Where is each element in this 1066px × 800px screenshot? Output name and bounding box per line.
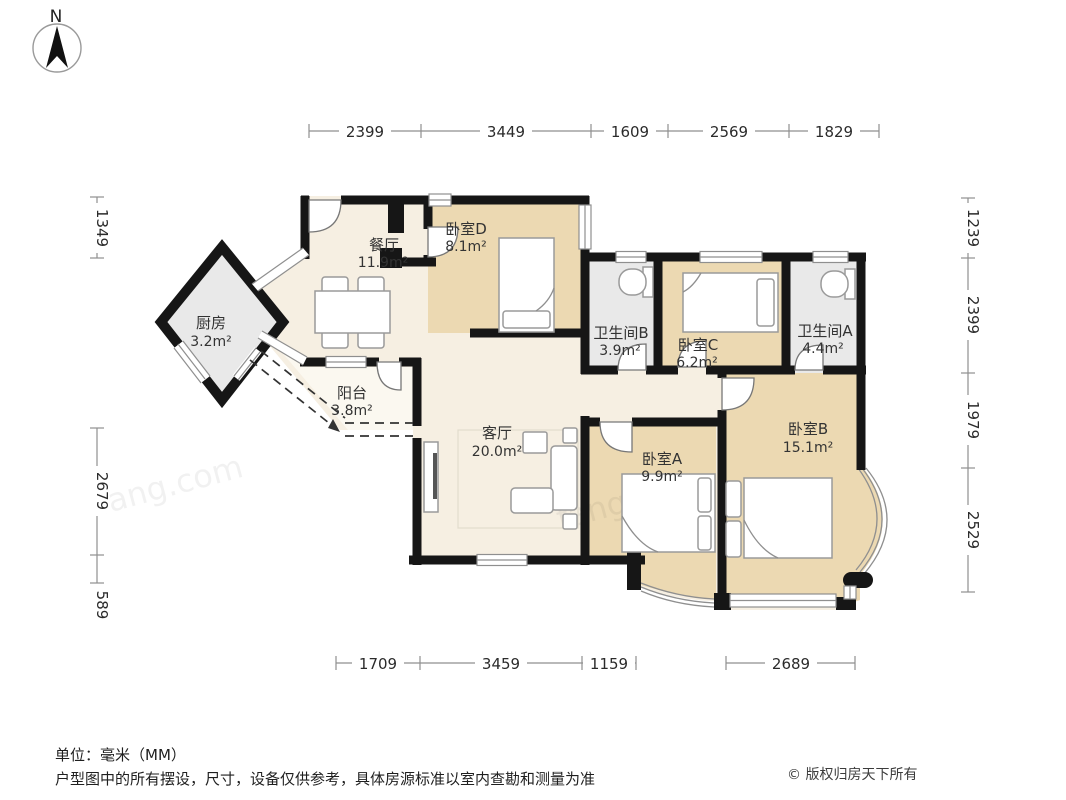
toilet-icon-bathroom-a — [821, 269, 855, 299]
room-area: 8.1m² — [445, 239, 487, 255]
dim-bottom-4: 2689 — [772, 655, 810, 673]
dimension-bottom: 1709 3459 1159 2689 — [336, 654, 855, 673]
room-bedroom-a: 卧室A 9.9m² — [641, 450, 683, 485]
room-area: 4.4m² — [802, 341, 844, 357]
dim-right-1: 1239 — [964, 209, 982, 247]
dimension-top: 2399 3449 1609 2569 1829 — [309, 122, 879, 141]
window-bathroom-b — [616, 252, 646, 263]
bed-icon-bedroom-a — [622, 474, 715, 552]
room-name: 客厅 — [482, 424, 512, 442]
room-area: 3.2m² — [190, 334, 232, 350]
dim-left-1: 1349 — [93, 209, 111, 247]
room-name: 厨房 — [196, 314, 226, 332]
watermark-text: fang.com — [92, 447, 247, 523]
window-bedroom-b-bottom — [730, 594, 836, 607]
toilet-icon-bathroom-b — [619, 267, 653, 297]
room-name: 阳台 — [337, 384, 367, 402]
dim-right-2: 2399 — [964, 296, 982, 334]
dim-right-3: 1979 — [964, 401, 982, 439]
room-name: 卫生间A — [797, 322, 853, 340]
room-name: 餐厅 — [369, 236, 399, 254]
room-area: 3.9m² — [599, 343, 641, 359]
dim-right-4: 2529 — [964, 511, 982, 549]
window-bedroom-b-right — [844, 586, 856, 599]
window-balcony — [326, 357, 366, 368]
room-name: 卧室C — [678, 336, 718, 354]
window-bathroom-a — [813, 252, 848, 263]
dim-top-2: 3449 — [487, 123, 525, 141]
dim-top-3: 1609 — [611, 123, 649, 141]
room-bathroom-b: 卫生间B 3.9m² — [593, 324, 648, 359]
room-bedroom-c: 卧室C 6.2m² — [676, 336, 718, 371]
room-balcony: 阳台 3.8m² — [331, 384, 373, 419]
floorplan: fang.com fang.com — [0, 0, 1066, 800]
tv-cabinet-icon — [424, 442, 438, 512]
room-name: 卫生间B — [593, 324, 648, 342]
room-area: 20.0m² — [472, 444, 522, 460]
room-area: 3.8m² — [331, 403, 373, 419]
room-name: 卧室D — [445, 220, 487, 238]
dim-top-5: 1829 — [815, 123, 853, 141]
room-name: 卧室A — [642, 450, 683, 468]
bed-icon-bedroom-d — [499, 238, 554, 332]
dim-bottom-1: 1709 — [359, 655, 397, 673]
room-area: 6.2m² — [676, 355, 718, 371]
footer-unit-note: 单位：毫米（MM） — [55, 746, 186, 764]
footer: 单位：毫米（MM） 户型图中的所有摆设，尺寸，设备仅供参考，具体房源标准以室内查… — [55, 746, 917, 788]
window-bedroom-d-right — [579, 205, 591, 249]
dim-left-3: 589 — [93, 591, 111, 620]
footer-copyright: © 版权归房天下所有 — [787, 766, 917, 783]
footer-disclaimer: 户型图中的所有摆设，尺寸，设备仅供参考，具体房源标准以室内查勘和测量为准 — [55, 770, 595, 788]
dim-left-2: 2679 — [93, 472, 111, 510]
dim-bottom-2: 3459 — [482, 655, 520, 673]
dimension-right: 1239 2399 1979 2529 — [960, 198, 982, 592]
dim-top-1: 2399 — [346, 123, 384, 141]
room-name: 卧室B — [788, 420, 828, 438]
room-area: 9.9m² — [641, 469, 683, 485]
room-bedroom-d: 卧室D 8.1m² — [445, 220, 487, 255]
window-bedroom-d-top — [429, 194, 451, 206]
compass-icon: N — [33, 7, 81, 72]
room-area: 15.1m² — [783, 440, 833, 456]
dim-top-4: 2569 — [710, 123, 748, 141]
window-bedroom-c — [700, 252, 762, 263]
dimension-left: 1349 2679 589 — [89, 197, 111, 619]
dim-bottom-3: 1159 — [590, 655, 628, 673]
bed-icon-bedroom-c — [683, 273, 778, 332]
room-area: 11.9m² — [358, 255, 408, 271]
compass-n-label: N — [50, 7, 63, 27]
window-living-bottom — [477, 555, 527, 566]
